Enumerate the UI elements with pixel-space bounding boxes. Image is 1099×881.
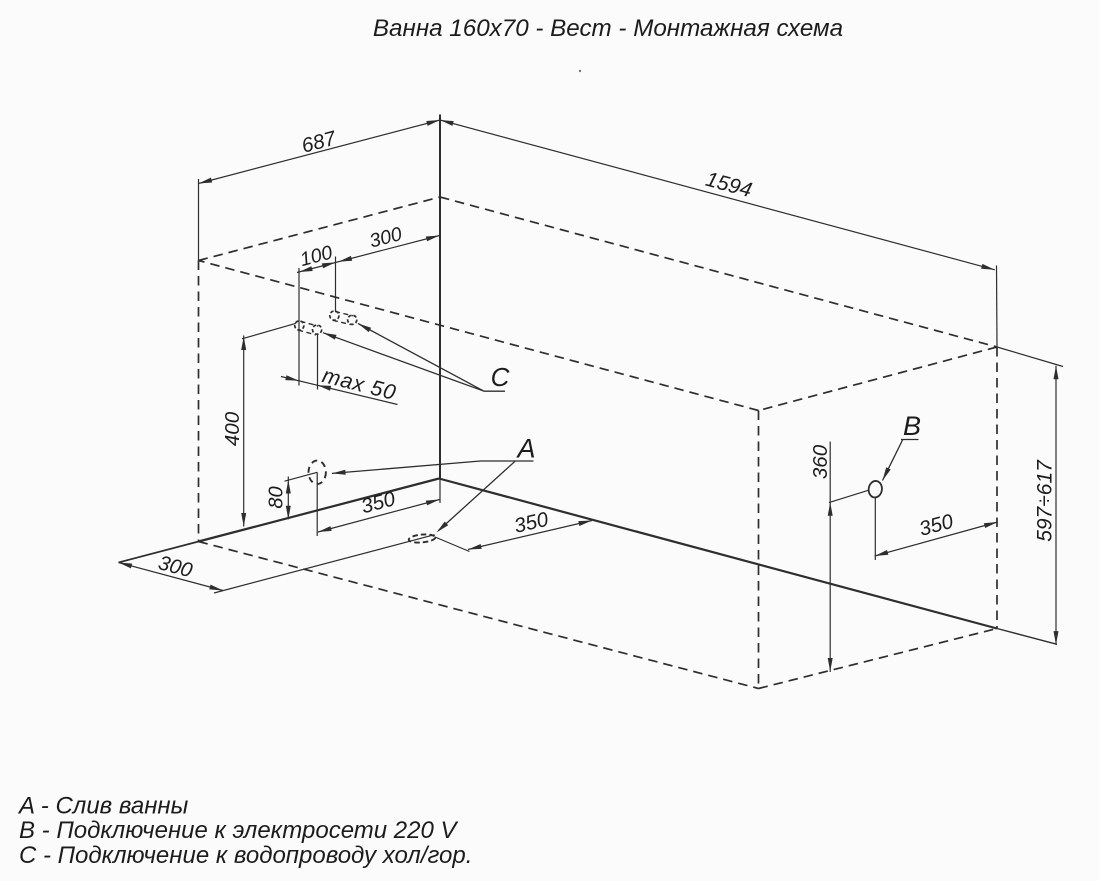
svg-text:C: C xyxy=(491,362,510,392)
svg-text:597÷617: 597÷617 xyxy=(1034,459,1057,542)
svg-text:B - Подключение к электросети: B - Подключение к электросети 220 V xyxy=(19,817,458,844)
svg-text:400: 400 xyxy=(221,411,244,446)
svg-text:360: 360 xyxy=(809,444,832,479)
svg-text:80: 80 xyxy=(266,486,288,508)
svg-text:A: A xyxy=(515,434,535,464)
svg-text:A - Слив ванны: A - Слив ванны xyxy=(17,793,189,820)
svg-text:C - Подключение к водопроводу: C - Подключение к водопроводу хол/гор. xyxy=(19,842,472,869)
svg-text:Ванна 160х70 - Вест - Монтажна: Ванна 160х70 - Вест - Монтажная схема xyxy=(373,15,843,42)
svg-text:B: B xyxy=(903,411,921,441)
